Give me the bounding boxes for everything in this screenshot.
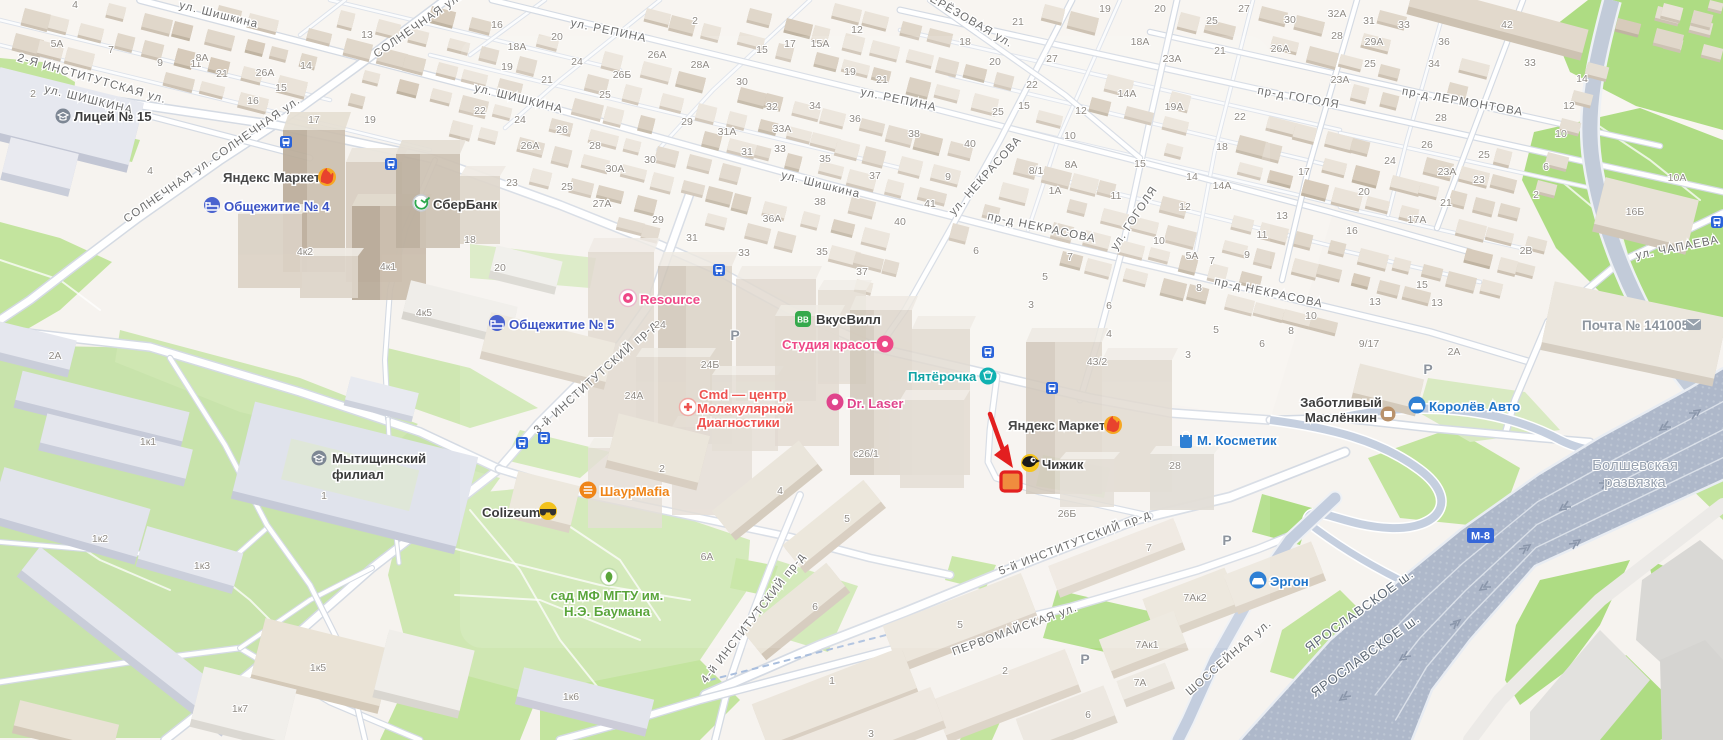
svg-text:10А: 10А bbox=[1668, 172, 1687, 184]
svg-text:ВВ: ВВ bbox=[797, 316, 809, 325]
svg-text:18: 18 bbox=[1216, 141, 1228, 153]
svg-text:23А: 23А bbox=[1331, 74, 1350, 86]
svg-text:32А: 32А bbox=[1328, 8, 1347, 20]
svg-text:Яндекс Маркет: Яндекс Маркет bbox=[1008, 418, 1106, 433]
svg-text:7А: 7А bbox=[1134, 677, 1147, 689]
svg-text:21: 21 bbox=[1214, 45, 1226, 57]
svg-text:Р: Р bbox=[1222, 532, 1231, 548]
svg-text:28: 28 bbox=[1169, 460, 1181, 472]
svg-text:5А: 5А bbox=[1186, 250, 1199, 262]
svg-text:26: 26 bbox=[1421, 139, 1433, 151]
svg-text:37: 37 bbox=[869, 170, 881, 182]
svg-text:М. Косметик: М. Косметик bbox=[1197, 433, 1277, 448]
svg-text:33: 33 bbox=[774, 143, 786, 155]
svg-text:15: 15 bbox=[1416, 279, 1428, 291]
svg-text:20: 20 bbox=[551, 31, 563, 43]
svg-text:Чижик: Чижик bbox=[1042, 457, 1084, 472]
svg-text:41: 41 bbox=[924, 198, 936, 210]
svg-text:25: 25 bbox=[1478, 149, 1490, 161]
svg-text:5: 5 bbox=[844, 513, 850, 525]
svg-text:37: 37 bbox=[856, 266, 868, 278]
svg-text:Cmd — центр: Cmd — центр bbox=[699, 387, 787, 402]
svg-text:34: 34 bbox=[809, 100, 821, 112]
svg-text:26Б: 26Б bbox=[1058, 508, 1077, 520]
svg-text:5А: 5А bbox=[51, 38, 64, 50]
svg-text:36: 36 bbox=[1438, 36, 1450, 48]
svg-text:5: 5 bbox=[1042, 271, 1048, 283]
svg-text:19: 19 bbox=[844, 66, 856, 78]
svg-text:18: 18 bbox=[464, 234, 476, 246]
svg-text:25: 25 bbox=[599, 89, 611, 101]
svg-text:35: 35 bbox=[819, 153, 831, 165]
svg-text:24Б: 24Б bbox=[701, 359, 720, 371]
svg-text:34: 34 bbox=[1428, 58, 1440, 70]
svg-text:32: 32 bbox=[766, 101, 778, 113]
svg-text:6А: 6А bbox=[701, 551, 714, 563]
svg-text:Лицей № 15: Лицей № 15 bbox=[74, 109, 152, 124]
svg-text:7: 7 bbox=[1146, 542, 1152, 554]
svg-text:2: 2 bbox=[1533, 189, 1539, 201]
svg-text:6: 6 bbox=[1085, 709, 1091, 721]
svg-text:21: 21 bbox=[1440, 197, 1452, 209]
svg-text:27А: 27А bbox=[593, 198, 612, 210]
svg-text:7: 7 bbox=[108, 44, 114, 56]
svg-text:24: 24 bbox=[571, 56, 583, 68]
svg-text:13: 13 bbox=[1276, 210, 1288, 222]
svg-text:16: 16 bbox=[247, 95, 259, 107]
svg-text:15: 15 bbox=[1134, 158, 1146, 170]
svg-text:26Б: 26Б bbox=[613, 69, 632, 81]
svg-text:филиал: филиал bbox=[332, 467, 384, 482]
svg-text:26А: 26А bbox=[648, 49, 667, 61]
svg-text:36А: 36А bbox=[763, 213, 782, 225]
svg-text:22: 22 bbox=[474, 105, 486, 117]
svg-text:12: 12 bbox=[1179, 201, 1191, 213]
svg-text:Р: Р bbox=[730, 327, 739, 343]
svg-text:Р: Р bbox=[1080, 651, 1089, 667]
svg-text:16Б: 16Б bbox=[1626, 206, 1645, 218]
svg-text:29: 29 bbox=[681, 116, 693, 128]
svg-text:40: 40 bbox=[964, 138, 976, 150]
svg-text:15: 15 bbox=[1018, 100, 1030, 112]
svg-text:3: 3 bbox=[1028, 299, 1034, 311]
svg-text:12: 12 bbox=[1563, 100, 1575, 112]
svg-text:7: 7 bbox=[1209, 255, 1215, 267]
svg-text:Яндекс Маркет: Яндекс Маркет bbox=[223, 170, 321, 185]
svg-text:14: 14 bbox=[1576, 73, 1588, 85]
svg-text:27: 27 bbox=[1238, 3, 1250, 15]
svg-text:25: 25 bbox=[992, 106, 1004, 118]
svg-text:Заботливый: Заботливый bbox=[1300, 395, 1382, 410]
svg-text:29А: 29А bbox=[1365, 36, 1384, 48]
svg-text:6: 6 bbox=[973, 245, 979, 257]
svg-text:20: 20 bbox=[1358, 186, 1370, 198]
svg-text:33: 33 bbox=[738, 247, 750, 259]
svg-text:11: 11 bbox=[1257, 229, 1268, 241]
svg-text:18А: 18А bbox=[1131, 36, 1150, 48]
svg-text:Молекулярной: Молекулярной bbox=[697, 401, 793, 416]
svg-text:19: 19 bbox=[364, 114, 376, 126]
svg-text:2: 2 bbox=[1002, 665, 1008, 677]
svg-text:13: 13 bbox=[361, 29, 373, 41]
svg-text:7Ак2: 7Ак2 bbox=[1183, 592, 1206, 604]
svg-text:1: 1 bbox=[829, 675, 835, 687]
svg-text:Студия красоты: Студия красоты bbox=[782, 337, 888, 352]
svg-text:38: 38 bbox=[908, 128, 920, 140]
svg-text:23: 23 bbox=[506, 177, 518, 189]
svg-text:2: 2 bbox=[692, 15, 698, 27]
svg-text:36: 36 bbox=[849, 113, 861, 125]
svg-text:3: 3 bbox=[1185, 349, 1191, 361]
svg-text:15: 15 bbox=[275, 82, 287, 94]
svg-text:Dr. Laser: Dr. Laser bbox=[847, 396, 903, 411]
svg-text:30: 30 bbox=[644, 154, 656, 166]
svg-text:17: 17 bbox=[1298, 166, 1310, 178]
svg-text:22: 22 bbox=[1026, 79, 1038, 91]
svg-text:ШаурMafia: ШаурMafia bbox=[600, 484, 670, 499]
svg-text:42: 42 bbox=[1501, 19, 1513, 31]
svg-text:8: 8 bbox=[1196, 282, 1202, 294]
svg-text:2А: 2А bbox=[1448, 346, 1461, 358]
svg-text:9/17: 9/17 bbox=[1359, 338, 1380, 350]
svg-text:15А: 15А bbox=[811, 38, 830, 50]
svg-text:М-8: М-8 bbox=[1471, 531, 1490, 543]
svg-text:Р: Р bbox=[1423, 361, 1432, 377]
svg-text:38: 38 bbox=[814, 196, 826, 208]
svg-text:Colizeum: Colizeum bbox=[482, 505, 541, 520]
svg-text:40: 40 bbox=[894, 216, 906, 228]
svg-text:Королёв Авто: Королёв Авто bbox=[1429, 399, 1520, 414]
svg-text:30А: 30А bbox=[606, 163, 625, 175]
svg-text:20: 20 bbox=[989, 56, 1001, 68]
svg-text:17: 17 bbox=[784, 38, 796, 50]
svg-text:27: 27 bbox=[1046, 53, 1058, 65]
svg-text:1А: 1А bbox=[1049, 185, 1062, 197]
svg-text:26: 26 bbox=[556, 124, 568, 136]
svg-text:Общежитие № 4: Общежитие № 4 bbox=[224, 199, 330, 214]
svg-text:7: 7 bbox=[1067, 251, 1073, 263]
svg-text:12: 12 bbox=[1075, 105, 1087, 117]
svg-text:1к3: 1к3 bbox=[194, 560, 210, 572]
svg-text:4: 4 bbox=[777, 485, 783, 497]
svg-text:Почта № 141005: Почта № 141005 bbox=[1582, 318, 1690, 333]
svg-text:6: 6 bbox=[1106, 300, 1112, 312]
svg-text:СберБанк: СберБанк bbox=[433, 197, 498, 212]
svg-text:28: 28 bbox=[1331, 30, 1343, 42]
svg-text:20: 20 bbox=[494, 262, 506, 274]
svg-text:2В: 2В bbox=[1520, 245, 1533, 257]
svg-text:16: 16 bbox=[1346, 225, 1358, 237]
svg-text:1к7: 1к7 bbox=[232, 703, 248, 715]
svg-text:21: 21 bbox=[541, 74, 553, 86]
svg-text:Resource: Resource bbox=[640, 292, 700, 307]
svg-text:13: 13 bbox=[1431, 297, 1443, 309]
svg-text:24: 24 bbox=[654, 319, 666, 331]
svg-text:9: 9 bbox=[1244, 249, 1250, 261]
svg-text:7Ак1: 7Ак1 bbox=[1135, 639, 1158, 651]
svg-text:31А: 31А bbox=[718, 126, 737, 138]
svg-text:2А: 2А bbox=[49, 350, 62, 362]
svg-text:4к2: 4к2 bbox=[297, 246, 313, 258]
svg-text:9: 9 bbox=[157, 57, 163, 69]
svg-text:6: 6 bbox=[1259, 338, 1265, 350]
svg-text:4: 4 bbox=[72, 0, 78, 11]
svg-text:19А: 19А bbox=[1165, 101, 1184, 113]
svg-text:17А: 17А bbox=[1408, 214, 1427, 226]
svg-text:10: 10 bbox=[1153, 235, 1165, 247]
svg-text:10: 10 bbox=[1064, 130, 1076, 142]
svg-text:21: 21 bbox=[216, 68, 228, 80]
svg-text:18: 18 bbox=[959, 36, 971, 48]
svg-text:23: 23 bbox=[1473, 174, 1485, 186]
svg-text:3: 3 bbox=[868, 728, 874, 740]
svg-text:29: 29 bbox=[652, 214, 664, 226]
svg-text:4к1: 4к1 bbox=[380, 261, 396, 273]
svg-text:8А: 8А bbox=[1065, 159, 1078, 171]
svg-text:с26/1: с26/1 bbox=[853, 448, 879, 460]
svg-text:1к2: 1к2 bbox=[92, 533, 108, 545]
svg-text:4к5: 4к5 bbox=[416, 307, 432, 319]
svg-text:сад МФ МГТУ им.: сад МФ МГТУ им. bbox=[551, 588, 664, 603]
svg-text:25: 25 bbox=[1364, 58, 1376, 70]
svg-text:6: 6 bbox=[1543, 161, 1549, 173]
svg-text:2: 2 bbox=[30, 88, 36, 100]
svg-text:19: 19 bbox=[501, 61, 513, 73]
svg-text:17: 17 bbox=[308, 114, 320, 126]
svg-text:Пятёрочка: Пятёрочка bbox=[908, 369, 977, 384]
svg-text:4: 4 bbox=[147, 165, 153, 177]
svg-text:Маслёнкин: Маслёнкин bbox=[1305, 410, 1377, 425]
svg-text:31: 31 bbox=[686, 232, 698, 244]
svg-text:Н.Э. Баумана: Н.Э. Баумана bbox=[564, 604, 651, 619]
svg-text:9: 9 bbox=[945, 171, 951, 183]
svg-text:ВкусВилл: ВкусВилл bbox=[816, 312, 881, 327]
svg-text:16: 16 bbox=[491, 19, 503, 31]
svg-text:2: 2 bbox=[659, 463, 665, 475]
svg-text:1к6: 1к6 bbox=[563, 691, 579, 703]
svg-text:43/2: 43/2 bbox=[1087, 356, 1108, 368]
svg-text:28А: 28А bbox=[691, 59, 710, 71]
svg-text:5: 5 bbox=[957, 619, 963, 631]
svg-text:35: 35 bbox=[816, 246, 828, 258]
svg-text:8А: 8А bbox=[196, 52, 209, 64]
svg-text:25: 25 bbox=[561, 181, 573, 193]
svg-text:14: 14 bbox=[1186, 171, 1198, 183]
svg-text:30: 30 bbox=[1284, 14, 1296, 26]
svg-text:24: 24 bbox=[514, 114, 526, 126]
svg-text:26А: 26А bbox=[521, 140, 540, 152]
svg-text:24А: 24А bbox=[625, 390, 644, 402]
svg-text:1к1: 1к1 bbox=[140, 436, 156, 448]
svg-text:10: 10 bbox=[1305, 310, 1317, 322]
svg-text:15: 15 bbox=[756, 44, 768, 56]
svg-text:31: 31 bbox=[1363, 15, 1375, 27]
svg-text:33: 33 bbox=[1398, 19, 1410, 31]
svg-text:25: 25 bbox=[1206, 15, 1218, 27]
svg-text:6: 6 bbox=[812, 601, 818, 613]
svg-text:28: 28 bbox=[1435, 112, 1447, 124]
svg-text:23А: 23А bbox=[1438, 166, 1457, 178]
svg-text:11: 11 bbox=[1111, 190, 1122, 202]
svg-text:Диагностики: Диагностики bbox=[697, 415, 780, 430]
svg-text:22: 22 bbox=[1234, 111, 1246, 123]
svg-text:13: 13 bbox=[1369, 296, 1381, 308]
svg-text:5: 5 bbox=[1213, 324, 1219, 336]
svg-text:26А: 26А bbox=[256, 67, 275, 79]
svg-text:21: 21 bbox=[1012, 16, 1024, 28]
svg-text:1к5: 1к5 bbox=[310, 662, 326, 674]
svg-text:1: 1 bbox=[321, 490, 327, 502]
svg-text:Эргон: Эргон bbox=[1270, 574, 1309, 589]
svg-text:26А: 26А bbox=[1271, 43, 1290, 55]
svg-text:23А: 23А bbox=[1163, 53, 1182, 65]
svg-text:8/1: 8/1 bbox=[1029, 165, 1044, 177]
svg-text:8: 8 bbox=[1288, 325, 1294, 337]
svg-text:развязка: развязка bbox=[1604, 474, 1666, 491]
svg-text:31: 31 bbox=[741, 146, 753, 158]
svg-text:33: 33 bbox=[1524, 57, 1536, 69]
svg-text:Мытищинский: Мытищинский bbox=[332, 451, 426, 466]
svg-text:4: 4 bbox=[1106, 328, 1112, 340]
svg-text:14: 14 bbox=[300, 60, 312, 72]
svg-text:33А: 33А bbox=[773, 123, 792, 135]
svg-text:14А: 14А bbox=[1213, 180, 1232, 192]
svg-text:21: 21 bbox=[876, 74, 888, 86]
svg-text:10: 10 bbox=[1555, 128, 1567, 140]
svg-text:19: 19 bbox=[1099, 3, 1111, 15]
svg-text:12: 12 bbox=[851, 24, 863, 36]
svg-text:28: 28 bbox=[589, 140, 601, 152]
svg-text:20: 20 bbox=[1154, 3, 1166, 15]
svg-text:24: 24 bbox=[1384, 155, 1396, 167]
svg-text:Болшевская: Болшевская bbox=[1592, 457, 1678, 474]
svg-text:30: 30 bbox=[736, 76, 748, 88]
svg-text:Общежитие № 5: Общежитие № 5 bbox=[509, 317, 614, 332]
svg-text:14А: 14А bbox=[1118, 88, 1137, 100]
svg-text:18А: 18А bbox=[508, 41, 527, 53]
